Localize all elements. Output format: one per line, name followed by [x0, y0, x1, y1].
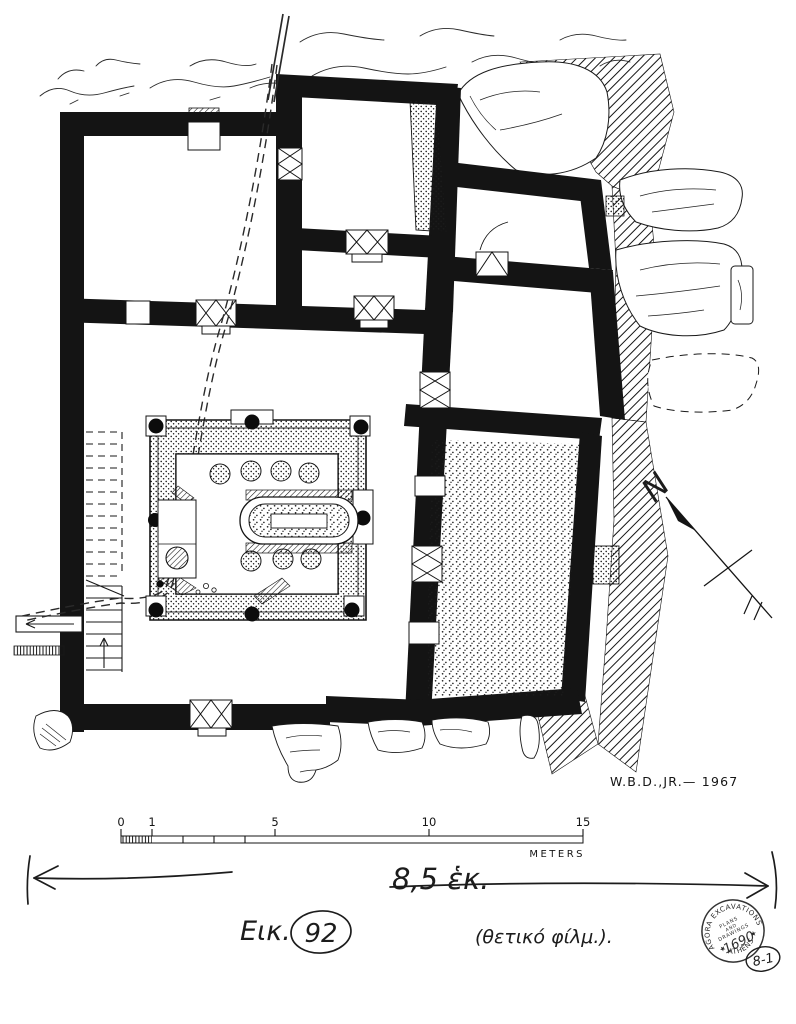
plate-code-text: 8-1: [751, 951, 775, 970]
wall-e-room-divider: [442, 256, 613, 294]
scale-tick-0: 0: [117, 815, 124, 829]
central-monument: [146, 410, 373, 622]
dimension-text: 8,5 ἑκ.: [392, 862, 489, 896]
door-threshold: [346, 230, 388, 262]
wall-west: [60, 112, 84, 732]
stair-direction-arrow: [100, 638, 108, 668]
stipple-block-east: [593, 546, 619, 584]
scale-tick-1: 1: [148, 815, 155, 829]
scanned-plan-sheet: N W.B.D.,JR.— 1967 0 1 5 10 15 METERS 8,…: [0, 0, 796, 1024]
door-threshold: [412, 546, 442, 582]
film-note: (θετικό φίλμ.).: [475, 926, 613, 948]
well-room: [158, 500, 196, 578]
wall-pier: [188, 108, 220, 150]
paved-court-floor: [426, 440, 581, 696]
figure-prefix: Εικ.: [240, 916, 291, 947]
plan-drawing: N W.B.D.,JR.— 1967 0 1 5 10 15 METERS 8,…: [0, 0, 796, 1024]
scale-unit-label: METERS: [529, 849, 585, 860]
door-threshold: [354, 296, 394, 328]
door-threshold: [190, 700, 232, 736]
wall-gap: [415, 476, 445, 496]
wall-ne-room-east: [578, 180, 612, 270]
door-threshold: [196, 300, 236, 334]
figure-number: 92: [304, 919, 337, 949]
door-threshold: [420, 372, 450, 408]
north-arrow-head: [666, 497, 696, 531]
scale-tick-5: 5: [271, 815, 278, 829]
draftsman-signature: W.B.D.,JR.— 1967: [610, 774, 738, 789]
wall-tl-room-east: [276, 92, 302, 324]
wall-north-left: [60, 112, 302, 136]
wall-gap: [409, 622, 439, 644]
door-with-swing: [476, 222, 508, 276]
scale-tick-10: 10: [422, 815, 437, 829]
figure-annotation: Εικ. 92: [240, 909, 352, 955]
wall-gap: [126, 301, 150, 324]
scale-bar-hatch-segment: [121, 836, 152, 843]
staircase: [86, 432, 124, 672]
scale-tick-15: 15: [576, 815, 591, 829]
ticked-strip: [14, 646, 64, 655]
well-mouth: [166, 547, 188, 569]
scale-bar: 0 1 5 10 15 METERS: [117, 815, 590, 860]
central-altar: [240, 490, 358, 553]
door-threshold: [278, 148, 302, 180]
stipple-block-ne: [606, 196, 624, 216]
